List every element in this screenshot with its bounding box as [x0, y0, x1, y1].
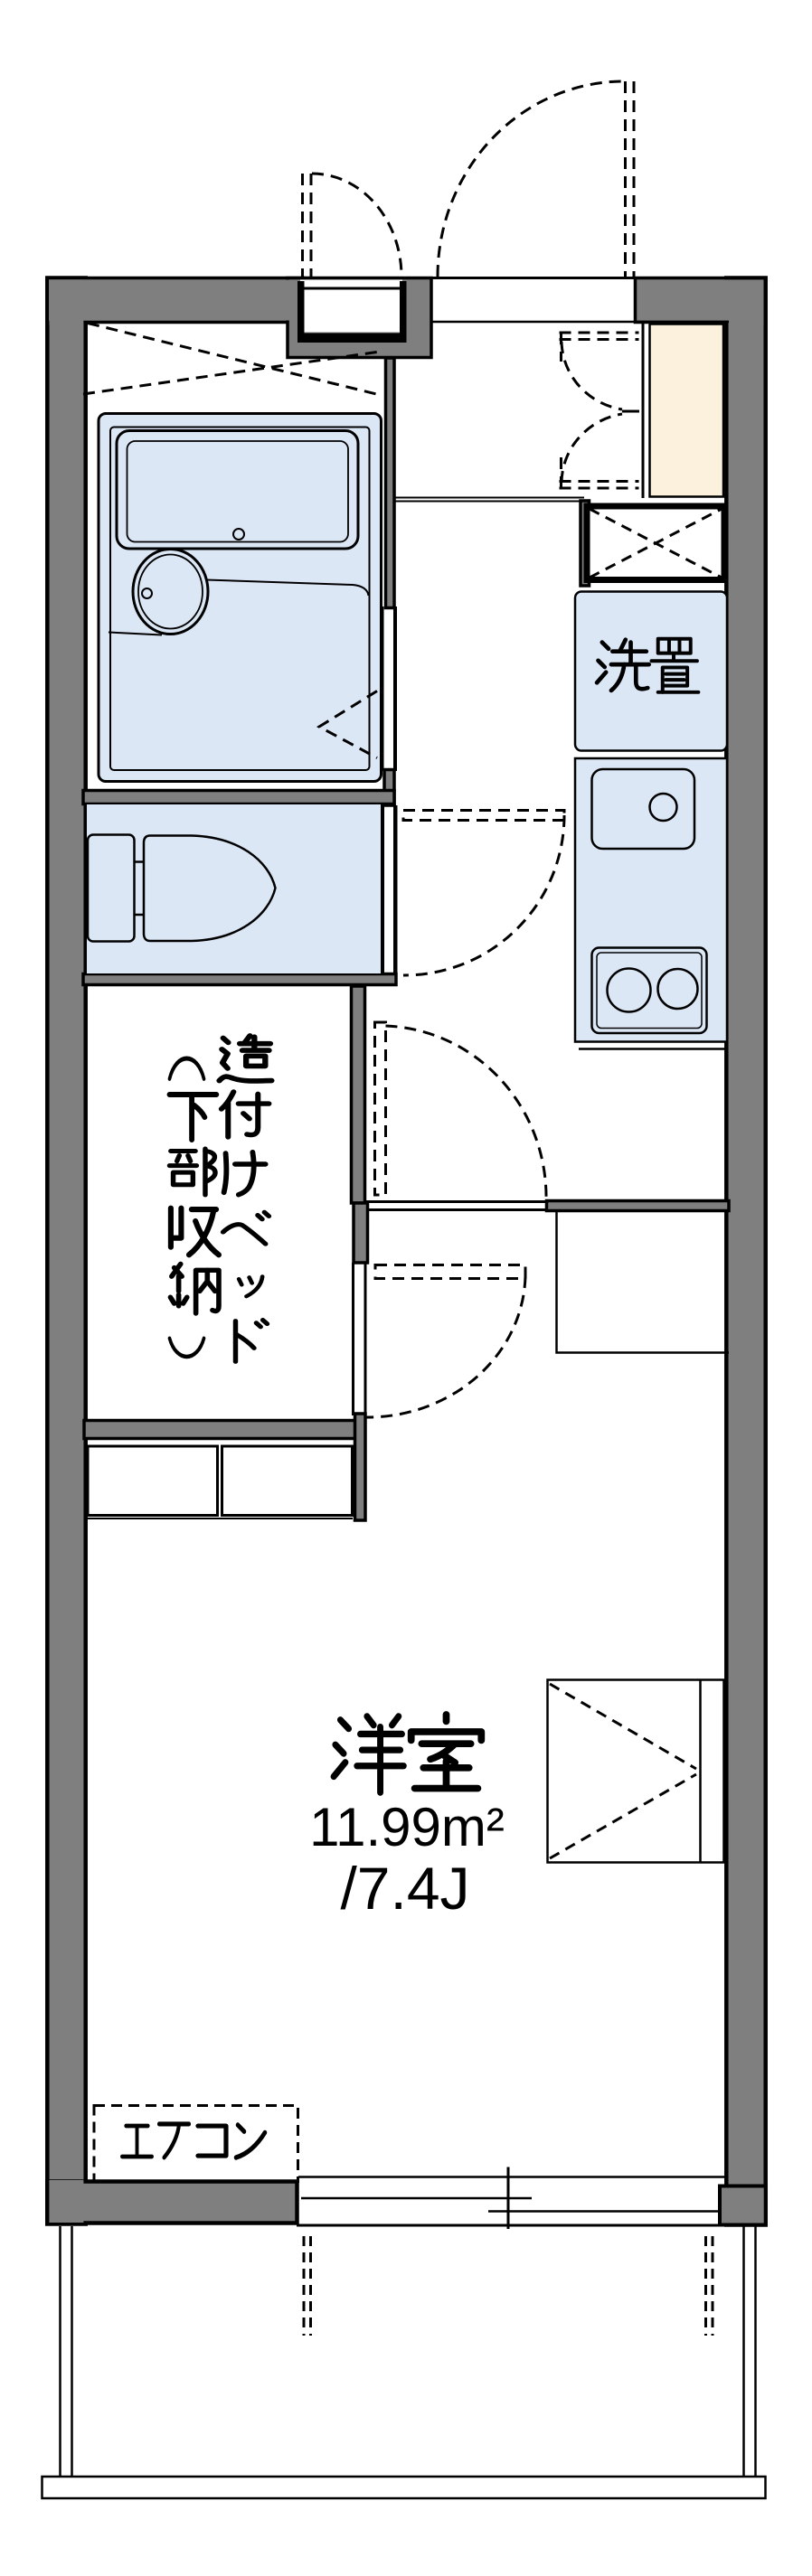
- svg-text:11.99m²: 11.99m²: [309, 1797, 505, 1857]
- svg-text:/7.4J: /7.4J: [340, 1855, 469, 1922]
